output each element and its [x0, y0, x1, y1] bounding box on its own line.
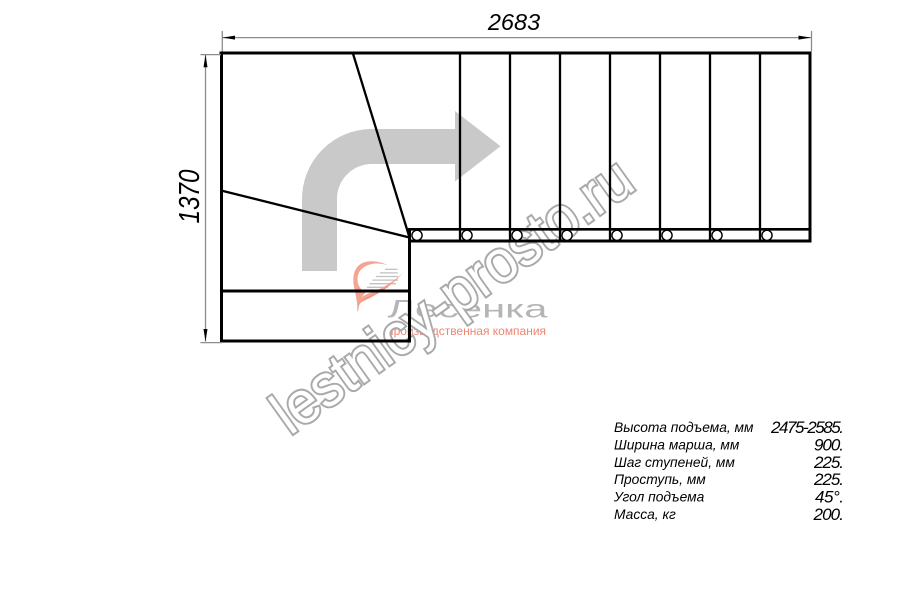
svg-text:Масса, кг: Масса, кг [614, 507, 676, 522]
svg-text:Угол подъема: Угол подъема [613, 490, 705, 505]
svg-text:Шаг ступеней, мм: Шаг ступеней, мм [614, 455, 735, 470]
svg-text:Ширина марша, мм: Ширина марша, мм [614, 437, 740, 452]
svg-text:225.: 225. [813, 470, 844, 489]
svg-text:Проступь, мм: Проступь, мм [614, 472, 706, 487]
svg-text:2475-2585.: 2475-2585. [770, 418, 844, 437]
svg-text:2683: 2683 [487, 9, 540, 35]
svg-text:45°.: 45°. [815, 488, 844, 507]
svg-text:225.: 225. [813, 453, 844, 472]
svg-text:1370: 1370 [174, 170, 206, 224]
svg-text:900.: 900. [814, 435, 844, 454]
svg-text:Высота подъема, мм: Высота подъема, мм [614, 420, 754, 435]
svg-text:200.: 200. [813, 505, 845, 524]
